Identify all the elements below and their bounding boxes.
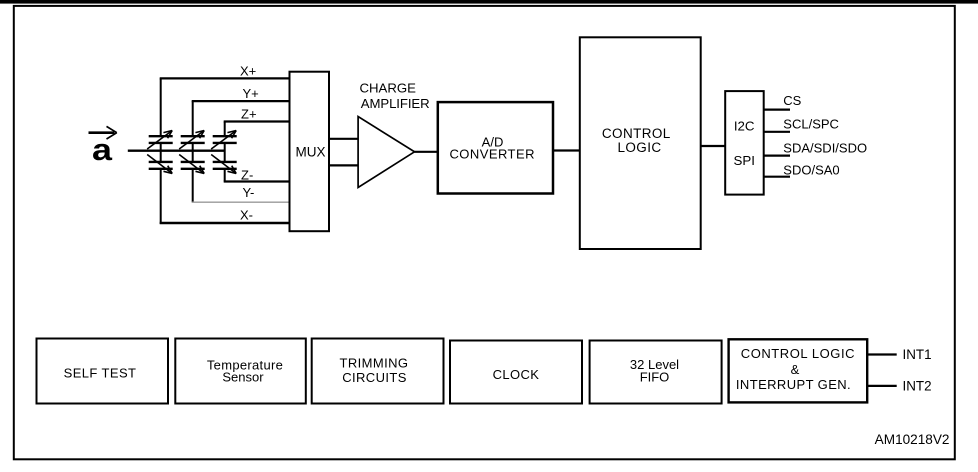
svg-text:SELF TEST: SELF TEST — [64, 366, 137, 381]
svg-text:MUX: MUX — [296, 145, 326, 160]
svg-text:a: a — [92, 132, 113, 167]
svg-text:TRIMMING: TRIMMING — [340, 356, 409, 371]
svg-text:CLOCK: CLOCK — [493, 367, 540, 382]
svg-text:&: & — [791, 362, 800, 377]
svg-text:LOGIC: LOGIC — [617, 140, 661, 155]
svg-text:CHARGE: CHARGE — [360, 80, 417, 95]
svg-text:I2C: I2C — [734, 118, 755, 133]
svg-text:SDA/SDI/SDO: SDA/SDI/SDO — [783, 141, 867, 156]
svg-text:INT1: INT1 — [903, 347, 932, 362]
svg-text:Y+: Y+ — [243, 86, 259, 101]
svg-text:INT2: INT2 — [903, 378, 932, 393]
svg-text:X-: X- — [240, 208, 253, 223]
svg-text:X+: X+ — [240, 64, 256, 79]
svg-text:SPI: SPI — [733, 153, 754, 168]
svg-text:CS: CS — [783, 93, 801, 108]
svg-text:SCL/SPC: SCL/SPC — [783, 117, 839, 132]
svg-text:FIFO: FIFO — [640, 369, 670, 384]
svg-text:AM10218V2: AM10218V2 — [875, 432, 950, 447]
svg-text:CIRCUITS: CIRCUITS — [342, 370, 407, 385]
svg-text:INTERRUPT GEN.: INTERRUPT GEN. — [736, 377, 851, 392]
svg-text:Z-: Z- — [241, 168, 253, 183]
svg-text:CONTROL LOGIC: CONTROL LOGIC — [741, 346, 855, 361]
svg-text:AMPLIFIER: AMPLIFIER — [361, 96, 430, 111]
svg-text:Y-: Y- — [243, 185, 255, 200]
svg-text:SDO/SA0: SDO/SA0 — [783, 163, 839, 178]
svg-text:CONVERTER: CONVERTER — [449, 146, 534, 161]
svg-text:Sensor: Sensor — [222, 370, 264, 385]
svg-text:Z+: Z+ — [241, 107, 257, 122]
